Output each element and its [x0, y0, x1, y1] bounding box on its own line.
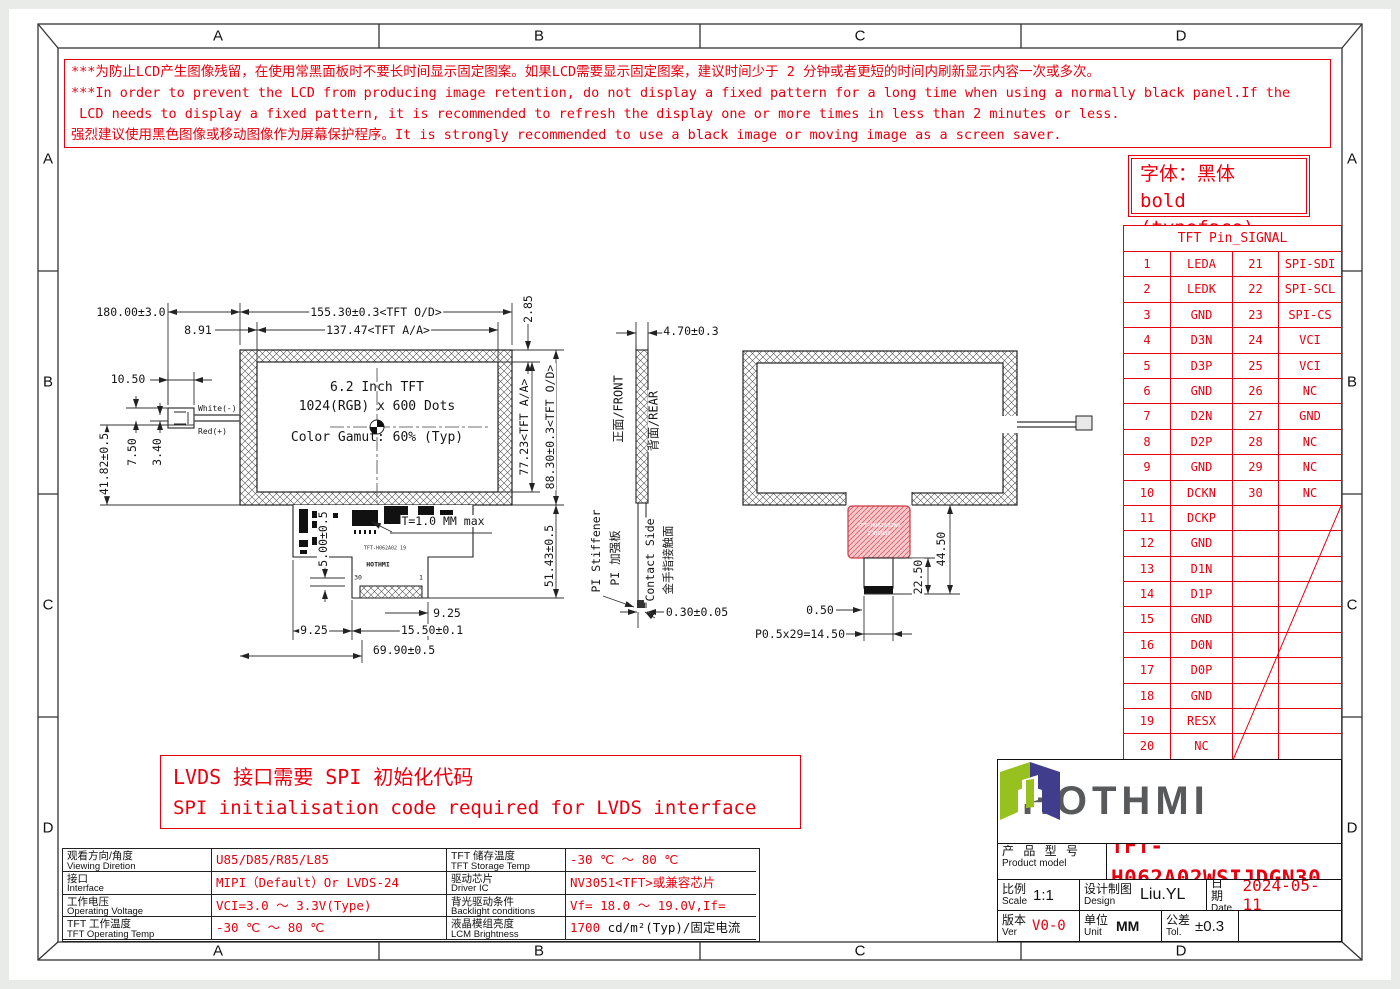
dim-wire-gap-a: 7.50 [126, 437, 138, 467]
spec-value: 1700 cd/m²(Typ)/固定电流测试 [566, 917, 756, 940]
pin-cell: D3P [1171, 354, 1233, 379]
pin-cell [1279, 734, 1341, 759]
pin-cell: 4 [1124, 328, 1171, 353]
zone-label: C [855, 28, 866, 45]
dim-rear-total: 44.50 [935, 531, 947, 568]
lvds-note-line: SPI initialisation code required for LVD… [173, 793, 788, 823]
pin-cell: D2P [1171, 430, 1233, 455]
pin-cell: VCI [1279, 354, 1341, 379]
pin-cell: 14 [1124, 582, 1171, 607]
spec-value: VCI=3.0 ～ 3.3V(Type) [212, 895, 447, 918]
pin-cell: 30 [1233, 481, 1279, 506]
scale-cell: 比例Scale 1:1 [998, 880, 1079, 910]
pin-cell: 28 [1233, 430, 1279, 455]
date-cell: 日期Date 2024-05-11 [1206, 880, 1341, 910]
dim-fpc-length: 51.43±0.5 [543, 524, 555, 588]
pin-cell: 2 [1124, 277, 1171, 302]
spec-label: 背光驱动条件Backlight conditions [447, 895, 566, 918]
pin-cell: 6 [1124, 379, 1171, 404]
pin-cell [1279, 684, 1341, 709]
fpc-marking-text: TFT-H062A02 19 [364, 546, 406, 551]
zone-label: A [213, 943, 223, 960]
panel-gamut-text: Color Gamut: 60% (Typ) [290, 431, 464, 445]
pin-cell [1233, 734, 1279, 759]
pin-cell [1233, 607, 1279, 632]
front-view [100, 300, 564, 663]
zone-label: D [1347, 820, 1358, 837]
tolerance-cell: 公差Tol. ±0.3 [1161, 911, 1238, 941]
pin-cell: SPI-SDI [1279, 252, 1341, 277]
spec-value: Vf= 18.0 ～ 19.0V,If= 160 mA [566, 895, 756, 918]
pin-cell: SPI-SCL [1279, 277, 1341, 302]
dim-outline-height: 88.30±0.3<TFT O/D> [544, 364, 556, 491]
title-block: HOTHMI 产 品 型 号 Product model TFT-H062A02… [997, 759, 1342, 942]
stiffener-label-en: PI Stiffener [590, 508, 602, 593]
spec-label: 接口Interface [63, 872, 212, 895]
spec-label: TFT 工作温度TFT Operating Temp [63, 917, 212, 940]
dim-connector-width: 10.50 [110, 373, 147, 385]
dim-fpc-width: 69.90±0.5 [372, 644, 436, 656]
pin-cell: 25 [1233, 354, 1279, 379]
pin-cell: NC [1279, 430, 1341, 455]
fpc-pin30-label: 30 [354, 575, 362, 582]
dim-fpc-step: 5.00±0.5 [317, 510, 329, 567]
contact-label-en: Contact Side [644, 517, 656, 602]
pin-cell: RESX [1171, 709, 1233, 734]
spec-value: -30 ℃ ～ 80 ℃ [566, 849, 756, 872]
pin-cell: 11 [1124, 506, 1171, 531]
rear-view [743, 351, 1092, 641]
wire-label-white: White(-) [197, 405, 238, 413]
warning-line: ***为防止LCD产生图像残留，在使用常黑面板时不要长时间显示固定图案。如果LC… [71, 62, 1324, 83]
fpc-pin1-label: 1 [419, 575, 423, 582]
pin-cell: GND [1171, 607, 1233, 632]
pin-signal-table: TFT Pin_SIGNAL 1LEDA21SPI-SDI 2LEDK22SPI… [1123, 225, 1342, 761]
pin-cell: 1 [1124, 252, 1171, 277]
pin-cell: GND [1171, 303, 1233, 328]
pin-cell [1279, 582, 1341, 607]
typeface-note: 字体：黑体 bold (typeface) [1128, 155, 1310, 217]
spec-label: 液晶模组亮度LCM Brightness [447, 917, 566, 940]
pin-cell: DCKN [1171, 481, 1233, 506]
date-value: 2024-05-11 [1243, 880, 1337, 910]
pin-cell [1279, 506, 1341, 531]
zone-label: C [1347, 597, 1358, 614]
lvds-note-line: LVDS 接口需要 SPI 初始化代码 [173, 761, 788, 793]
pin-cell: 21 [1233, 252, 1279, 277]
pin-cell: D0P [1171, 658, 1233, 683]
wire-label-red: Red(+) [197, 428, 228, 436]
logo-row: HOTHMI [998, 760, 1341, 843]
pin-cell: 13 [1124, 557, 1171, 582]
pin-cell: D1N [1171, 557, 1233, 582]
pin-cell: 7 [1124, 404, 1171, 429]
tolerance-value: ±0.3 [1195, 918, 1224, 935]
fpc-logo-text: HOTHMI [366, 562, 389, 569]
design-value: Liu.YL [1140, 886, 1185, 904]
pin-cell: DCKP [1171, 506, 1233, 531]
side-front-label: 正面/FRONT [613, 374, 626, 443]
pin-cell [1279, 709, 1341, 734]
dim-thickness-bottom: 0.30±0.05 [665, 606, 729, 618]
pin-cell: 23 [1233, 303, 1279, 328]
spec-value: -30 ℃ ～ 80 ℃ [212, 917, 447, 940]
sticker-text: TFT-H062A02WS [856, 524, 901, 530]
pin-cell: LEDK [1171, 277, 1233, 302]
warning-line: ***In order to prevent the LCD from prod… [71, 83, 1324, 104]
product-model-value: TFT-H062A02WSIJDGN30 [1106, 844, 1341, 879]
engineering-drawing-sheet: A B C D A B C D A B C D A B C D ***为防止LC… [0, 0, 1400, 989]
pin-cell: NC [1279, 455, 1341, 480]
pin-cell: NC [1171, 734, 1233, 759]
side-rear-label: 背面/REAR [648, 390, 661, 452]
pin-cell: 10 [1124, 481, 1171, 506]
version-cell: 版本Ver V0-0 [998, 911, 1079, 941]
spec-value: U85/D85/R85/L85 [212, 849, 447, 872]
dim-thickness-top: 4.70±0.3 [662, 325, 719, 337]
pin-cell: D2N [1171, 404, 1233, 429]
dim-aa-height: 77.23<TFT A/A> [518, 378, 530, 477]
zone-label: B [1347, 374, 1357, 391]
retention-warning-note: ***为防止LCD产生图像残留，在使用常黑面板时不要长时间显示固定图案。如果LC… [64, 59, 1331, 148]
zone-label: A [213, 28, 223, 45]
spec-value: MIPI（Default）Or LVDS-24 Bit+SPI [212, 872, 447, 895]
pin-cell: GND [1171, 531, 1233, 556]
pin-cell: GND [1171, 379, 1233, 404]
zone-label: C [855, 943, 866, 960]
pin-cell [1233, 709, 1279, 734]
stiffener-label-cn: PI 加强板 [609, 529, 621, 586]
pin-cell [1233, 658, 1279, 683]
projection-symbol-cell [1238, 911, 1341, 941]
dim-wire-gap-b: 3.40 [151, 437, 163, 467]
scale-value: 1:1 [1033, 887, 1054, 904]
dim-thickness: T=1.0 MM max [400, 515, 485, 527]
zone-label: C [43, 597, 54, 614]
pin-table-grid: 1LEDA21SPI-SDI 2LEDK22SPI-SCL 3GND23SPI-… [1124, 252, 1341, 760]
dim-tail-offset-right: 9.25 [432, 607, 462, 619]
pin-cell [1233, 633, 1279, 658]
zone-label: B [43, 374, 53, 391]
zone-label: A [43, 151, 53, 168]
spec-label: TFT 储存温度TFT Storage Temp [447, 849, 566, 872]
spec-label: 工作电压Operating Voltage [63, 895, 212, 918]
pin-cell: 9 [1124, 455, 1171, 480]
dim-top-margin: 2.85 [522, 294, 534, 324]
pin-cell: 3 [1124, 303, 1171, 328]
pin-cell [1279, 557, 1341, 582]
product-model-label: 产 品 型 号 Product model [998, 844, 1106, 879]
pin-cell: 22 [1233, 277, 1279, 302]
pin-cell: GND [1171, 455, 1233, 480]
pin-cell: NC [1279, 481, 1341, 506]
sticker-text: IJDGN30 [866, 532, 891, 538]
pin-cell: SPI-CS [1279, 303, 1341, 328]
zone-label: A [1347, 151, 1357, 168]
product-row: 产 品 型 号 Product model TFT-H062A02WSIJDGN… [998, 843, 1341, 879]
pin-cell: D3N [1171, 328, 1233, 353]
pin-cell: 18 [1124, 684, 1171, 709]
zone-label: B [534, 943, 544, 960]
warning-line: 强烈建议使用黑色图像或移动图像作为屏幕保护程序。It is strongly r… [71, 125, 1324, 146]
lvds-spi-note: LVDS 接口需要 SPI 初始化代码 SPI initialisation c… [160, 755, 801, 829]
pin-cell [1233, 557, 1279, 582]
pin-cell [1233, 506, 1279, 531]
warning-line: LCD needs to display a fixed pattern, it… [71, 104, 1324, 125]
pin-cell: 17 [1124, 658, 1171, 683]
pin-cell: 12 [1124, 531, 1171, 556]
panel-size-text: 6.2 Inch TFT [329, 381, 425, 395]
typeface-line: 字体：黑体 [1140, 161, 1298, 188]
zone-label: D [1176, 28, 1187, 45]
hothmi-logo-icon [998, 760, 1062, 822]
pin-cell [1233, 684, 1279, 709]
pin-cell [1279, 633, 1341, 658]
design-cell: 设计制图Design Liu.YL [1079, 880, 1206, 910]
version-value: V0-0 [1032, 918, 1066, 934]
zone-label: B [534, 28, 544, 45]
spec-label: 观看方向/角度Viewing Diretion [63, 849, 212, 872]
pin-cell [1279, 658, 1341, 683]
pin-cell: 29 [1233, 455, 1279, 480]
pin-cell [1233, 582, 1279, 607]
dim-tail-offset-left: 9.25 [299, 624, 329, 636]
pin-cell: 24 [1233, 328, 1279, 353]
pin-cell: GND [1171, 684, 1233, 709]
pin-table-title: TFT Pin_SIGNAL [1124, 226, 1341, 252]
dim-aa-offset: 8.91 [183, 324, 213, 336]
dim-rear-tail: 22.50 [912, 559, 924, 596]
pin-cell: 20 [1124, 734, 1171, 759]
spec-table: 观看方向/角度Viewing Diretion U85/D85/R85/L85 … [62, 848, 760, 942]
pin-cell: D1P [1171, 582, 1233, 607]
dim-aa-width: 137.47<TFT A/A> [325, 324, 431, 336]
ver-unit-tol-row: 版本Ver V0-0 单位Unit MM 公差Tol. ±0.3 [998, 910, 1341, 941]
unit-cell: 单位Unit MM [1079, 911, 1161, 941]
pin-cell [1279, 607, 1341, 632]
pin-cell: 16 [1124, 633, 1171, 658]
pin-cell [1233, 531, 1279, 556]
pin-cell: D0N [1171, 633, 1233, 658]
contact-label-cn: 金手指接触面 [662, 525, 674, 596]
unit-value: MM [1116, 918, 1139, 934]
dim-outline-width: 155.30±0.3<TFT O/D> [309, 306, 443, 318]
pin-cell: 26 [1233, 379, 1279, 404]
pin-cell: 5 [1124, 354, 1171, 379]
zone-label: D [43, 820, 54, 837]
pin-cell: 19 [1124, 709, 1171, 734]
dim-rear-pitch: P0.5x29=14.50 [754, 628, 846, 640]
dim-left-height: 41.82±0.5 [98, 432, 110, 496]
scale-design-date-row: 比例Scale 1:1 设计制图Design Liu.YL 日期Date 202… [998, 879, 1341, 910]
dim-wire-length: 180.00±3.0 [95, 306, 166, 318]
pin-cell: GND [1279, 404, 1341, 429]
spec-value: NV3051<TFT>或兼容芯片 [566, 872, 756, 895]
zone-label: D [1176, 943, 1187, 960]
pin-cell [1279, 531, 1341, 556]
pin-cell: VCI [1279, 328, 1341, 353]
pin-cell: NC [1279, 379, 1341, 404]
panel-resolution-text: 1024(RGB) x 600 Dots [298, 400, 457, 414]
spec-label: 驱动芯片Driver IC [447, 872, 566, 895]
pin-cell: LEDA [1171, 252, 1233, 277]
pin-cell: 8 [1124, 430, 1171, 455]
dim-tail-width: 15.50±0.1 [400, 624, 464, 636]
dim-rear-bar: 0.50 [805, 604, 835, 616]
pin-cell: 27 [1233, 404, 1279, 429]
pin-cell: 15 [1124, 607, 1171, 632]
